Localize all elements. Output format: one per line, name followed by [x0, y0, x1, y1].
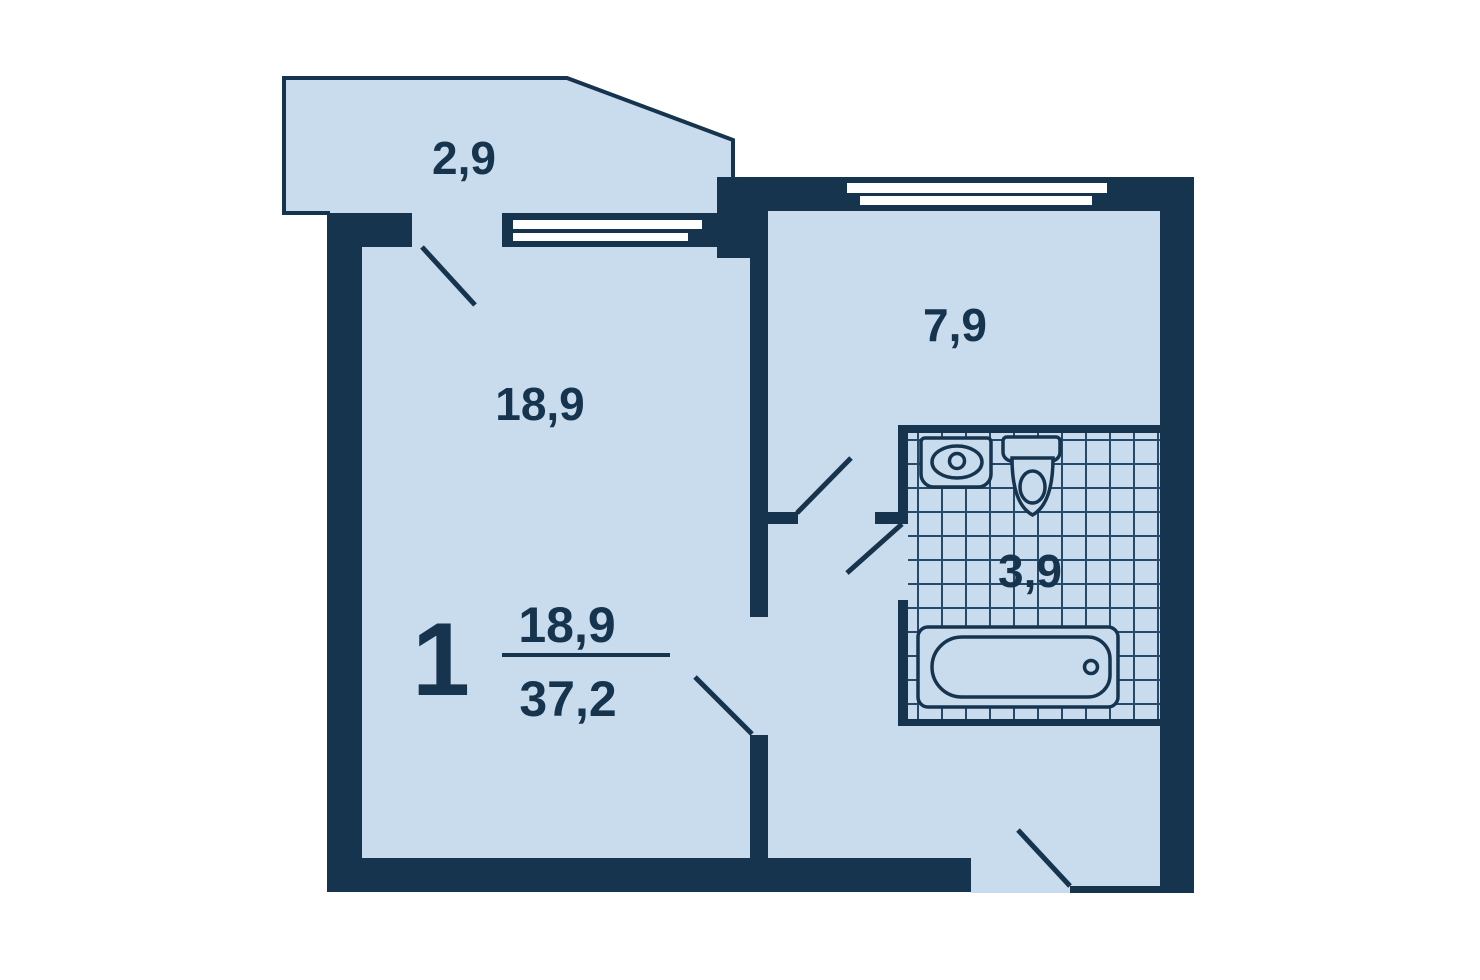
bathroom-area-label: 3,9 — [998, 548, 1062, 594]
fraction-line — [502, 653, 670, 657]
bathroom-door-swing — [847, 524, 902, 573]
living-door-swing — [695, 677, 752, 734]
living-room-area-label: 18,9 — [495, 381, 585, 427]
balcony-door-swing — [422, 247, 475, 305]
balcony-area-label: 2,9 — [432, 135, 496, 181]
kitchen-area-label: 7,9 — [923, 302, 987, 348]
fixtures-and-doors-layer — [0, 0, 1480, 980]
toilet-bowl — [1012, 458, 1053, 515]
kitchen-door-swing — [797, 458, 851, 513]
floor-plan: 2,9 18,9 7,9 3,9 1 18,9 37,2 — [0, 0, 1480, 980]
entrance-door-swing — [1018, 830, 1070, 886]
living-area-value: 18,9 — [518, 600, 615, 650]
total-area-value: 37,2 — [519, 674, 616, 724]
rooms-count-label: 1 — [412, 608, 470, 712]
